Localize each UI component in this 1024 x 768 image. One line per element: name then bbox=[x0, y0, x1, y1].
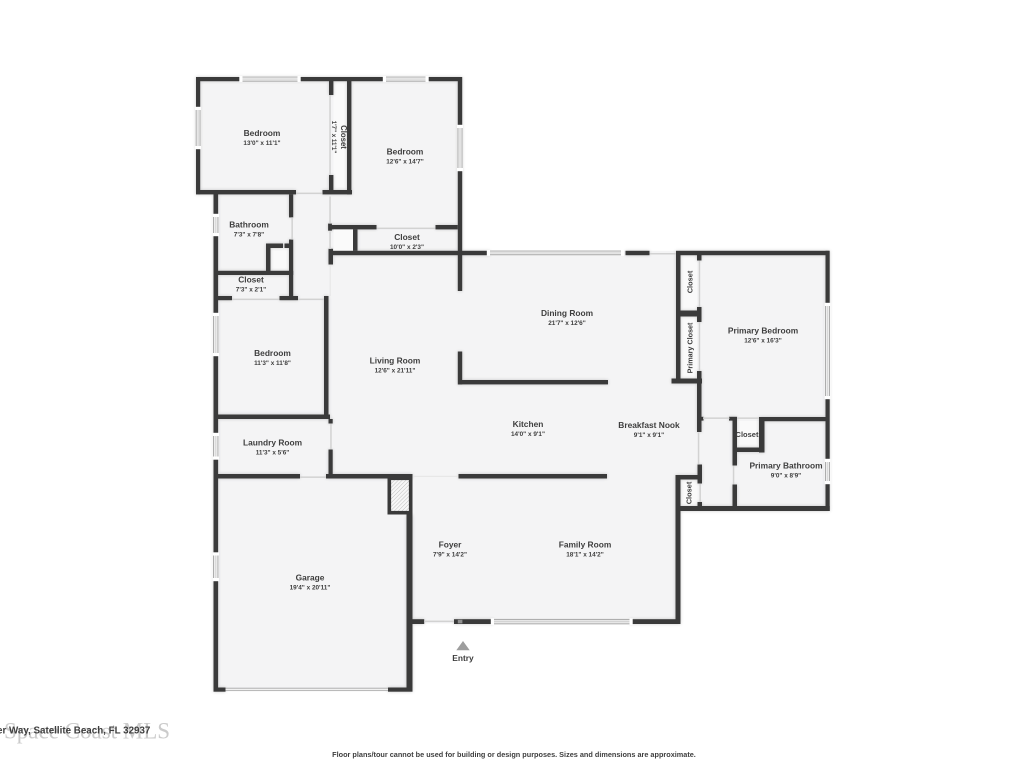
svg-text:Foyer: Foyer bbox=[439, 540, 463, 550]
svg-text:12'6" x 16'3": 12'6" x 16'3" bbox=[744, 338, 782, 345]
svg-text:11'3" x 5'6": 11'3" x 5'6" bbox=[256, 450, 290, 457]
svg-text:Laundry Room: Laundry Room bbox=[243, 438, 302, 448]
svg-text:9'0" x 8'9": 9'0" x 8'9" bbox=[771, 473, 801, 480]
svg-text:12'6" x 21'11": 12'6" x 21'11" bbox=[375, 368, 416, 375]
svg-text:18'1" x 14'2": 18'1" x 14'2" bbox=[566, 552, 604, 559]
svg-text:7'3" x 7'8": 7'3" x 7'8" bbox=[234, 232, 264, 239]
svg-text:Living Room: Living Room bbox=[370, 356, 421, 366]
svg-text:Floor plans/tour cannot be use: Floor plans/tour cannot be used for buil… bbox=[332, 750, 696, 759]
svg-text:21'7" x 12'6": 21'7" x 12'6" bbox=[548, 320, 586, 327]
svg-text:Closet: Closet bbox=[238, 275, 264, 285]
svg-text:Dining Room: Dining Room bbox=[541, 308, 593, 318]
svg-text:Primary Bathroom: Primary Bathroom bbox=[749, 461, 822, 471]
svg-text:10'0" x 2'3": 10'0" x 2'3" bbox=[390, 244, 424, 251]
svg-text:Kitchen: Kitchen bbox=[513, 419, 544, 429]
svg-text:13'0" x 11'1": 13'0" x 11'1" bbox=[243, 140, 280, 147]
svg-text:14'0" x 9'1": 14'0" x 9'1" bbox=[511, 431, 545, 438]
svg-text:Garage: Garage bbox=[296, 573, 325, 583]
svg-text:19'4" x 20'11": 19'4" x 20'11" bbox=[290, 585, 331, 592]
svg-text:Closet: Closet bbox=[339, 125, 348, 149]
svg-text:Closet: Closet bbox=[394, 232, 420, 242]
svg-text:9'1" x 9'1": 9'1" x 9'1" bbox=[634, 432, 664, 439]
svg-text:Closet: Closet bbox=[736, 430, 759, 439]
svg-text:er Way, Satellite Beach, FL 32: er Way, Satellite Beach, FL 32937 bbox=[0, 726, 151, 737]
svg-text:Primary Closet: Primary Closet bbox=[686, 322, 695, 373]
svg-text:Breakfast Nook: Breakfast Nook bbox=[618, 420, 680, 430]
svg-text:7'3" x 2'1": 7'3" x 2'1" bbox=[236, 287, 266, 294]
svg-text:Entry: Entry bbox=[452, 653, 474, 663]
svg-text:7'9" x 14'2": 7'9" x 14'2" bbox=[433, 552, 467, 559]
svg-text:Bathroom: Bathroom bbox=[229, 220, 269, 230]
svg-text:Primary Bedroom: Primary Bedroom bbox=[728, 326, 798, 336]
svg-text:Closet: Closet bbox=[685, 481, 694, 504]
svg-text:Bedroom: Bedroom bbox=[244, 128, 281, 138]
svg-text:Closet: Closet bbox=[686, 270, 695, 293]
svg-text:Bedroom: Bedroom bbox=[387, 147, 424, 157]
svg-text:1'7" x 11'1": 1'7" x 11'1" bbox=[330, 121, 337, 154]
svg-text:Bedroom: Bedroom bbox=[254, 348, 291, 358]
svg-text:12'6" x 14'7": 12'6" x 14'7" bbox=[386, 159, 424, 166]
svg-text:Family Room: Family Room bbox=[559, 540, 612, 550]
svg-text:11'3" x 11'8": 11'3" x 11'8" bbox=[254, 360, 291, 367]
